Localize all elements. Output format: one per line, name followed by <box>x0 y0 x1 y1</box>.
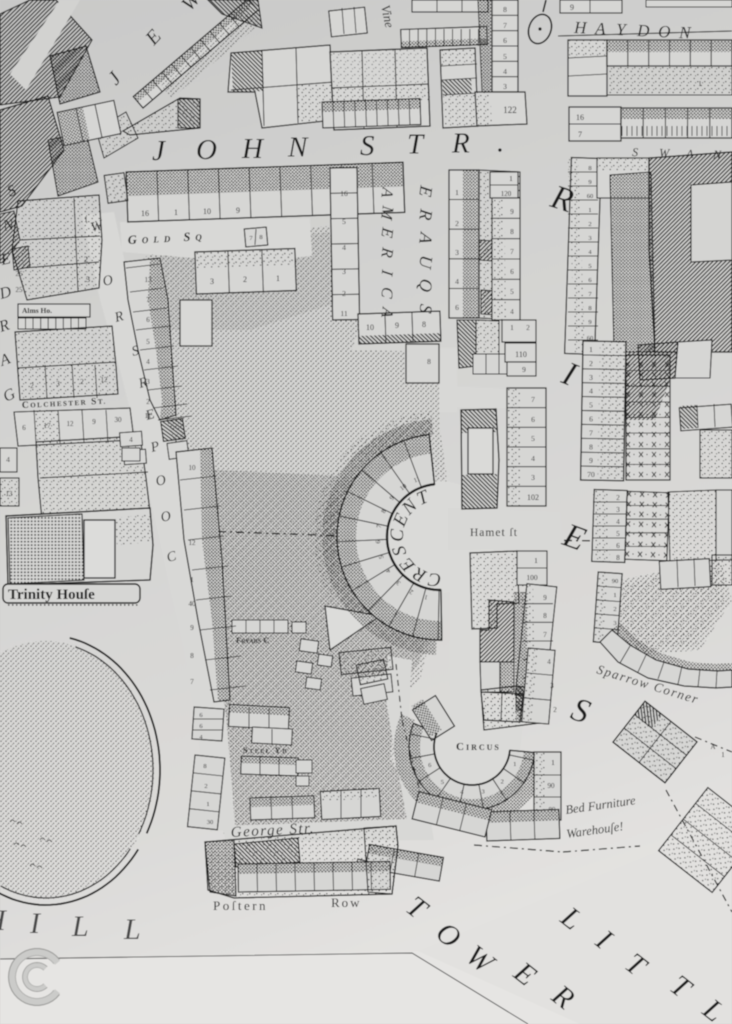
svg-text:3: 3 <box>342 267 346 276</box>
svg-text:1: 1 <box>84 214 88 224</box>
svg-text:10: 10 <box>189 464 197 472</box>
svg-text:90: 90 <box>612 578 619 585</box>
svg-text:9: 9 <box>588 319 591 326</box>
svg-text:4: 4 <box>129 436 133 444</box>
svg-text:90: 90 <box>548 782 556 790</box>
svg-text:9: 9 <box>92 418 96 426</box>
svg-text:H: H <box>241 133 265 165</box>
svg-text:5: 5 <box>441 779 444 786</box>
svg-text:S: S <box>360 130 375 162</box>
svg-text:Q: Q <box>415 278 437 294</box>
svg-text:3: 3 <box>86 274 90 284</box>
svg-text:4: 4 <box>510 308 514 316</box>
svg-text:7: 7 <box>190 678 194 686</box>
svg-text:2: 2 <box>84 254 88 264</box>
svg-text:2: 2 <box>613 606 616 613</box>
svg-text:3: 3 <box>503 82 507 91</box>
svg-text:8: 8 <box>422 320 426 329</box>
svg-text:2: 2 <box>588 221 591 228</box>
svg-text:7: 7 <box>531 395 535 404</box>
svg-text:3: 3 <box>588 235 591 242</box>
svg-text:Poſtern: Poſtern <box>213 898 268 913</box>
svg-text:1: 1 <box>174 208 178 217</box>
svg-text:5: 5 <box>531 434 535 443</box>
svg-text:7: 7 <box>578 130 582 139</box>
svg-text:5: 5 <box>588 263 591 270</box>
svg-text:30: 30 <box>207 819 214 826</box>
svg-text:10: 10 <box>203 207 211 216</box>
svg-text:8: 8 <box>510 228 514 236</box>
svg-text:2: 2 <box>342 289 346 298</box>
svg-text:5: 5 <box>503 52 507 61</box>
svg-text:6: 6 <box>589 415 593 424</box>
svg-text:Hamet ſt: Hamet ſt <box>470 527 518 539</box>
svg-text:2: 2 <box>526 324 530 332</box>
svg-text:1: 1 <box>510 324 514 332</box>
svg-text:12: 12 <box>101 376 109 384</box>
svg-text:Row: Row <box>331 895 362 910</box>
svg-text:9: 9 <box>570 3 574 12</box>
svg-text:Trinity Houſe: Trinity Houſe <box>8 587 95 603</box>
svg-text:1: 1 <box>589 345 593 354</box>
svg-text:1: 1 <box>588 207 591 214</box>
svg-text:A: A <box>594 19 607 38</box>
svg-text:9: 9 <box>522 365 526 374</box>
svg-text:3: 3 <box>531 473 535 482</box>
svg-text:12: 12 <box>67 420 75 428</box>
svg-text:5: 5 <box>616 530 620 538</box>
svg-text:6: 6 <box>22 424 26 432</box>
svg-text:120: 120 <box>501 190 512 198</box>
svg-text:9: 9 <box>589 456 593 465</box>
svg-text:8: 8 <box>588 165 591 172</box>
svg-text:4: 4 <box>146 358 150 366</box>
svg-text:8: 8 <box>616 554 620 562</box>
svg-text:5: 5 <box>146 338 150 346</box>
svg-text:6: 6 <box>616 542 620 550</box>
svg-text:O: O <box>196 134 217 166</box>
svg-text:6: 6 <box>455 303 459 312</box>
svg-text:.: . <box>497 126 504 158</box>
svg-text:3: 3 <box>56 380 60 388</box>
svg-text:J: J <box>152 135 166 167</box>
svg-text:2: 2 <box>30 382 34 390</box>
svg-text:8: 8 <box>203 763 206 770</box>
svg-text:1: 1 <box>698 80 702 88</box>
svg-text:9: 9 <box>236 206 240 215</box>
svg-text:8: 8 <box>427 357 431 366</box>
svg-text:2: 2 <box>616 494 620 502</box>
svg-text:2: 2 <box>146 398 150 406</box>
svg-text:60: 60 <box>587 193 594 200</box>
svg-text:7: 7 <box>510 248 514 256</box>
svg-text:L: L <box>71 910 89 943</box>
svg-text:4: 4 <box>503 67 507 76</box>
svg-text:7: 7 <box>543 631 547 639</box>
svg-text:2: 2 <box>455 219 459 228</box>
svg-text:3: 3 <box>613 620 616 627</box>
svg-text:1: 1 <box>206 801 209 808</box>
svg-text:3: 3 <box>589 373 593 382</box>
svg-text:3: 3 <box>455 248 459 257</box>
svg-text:7: 7 <box>146 296 150 304</box>
svg-text:9: 9 <box>395 321 399 330</box>
svg-text:2: 2 <box>501 779 504 786</box>
svg-text:4: 4 <box>589 387 593 396</box>
svg-text:1: 1 <box>190 576 194 584</box>
svg-text:5: 5 <box>342 217 346 226</box>
svg-text:D: D <box>636 21 651 40</box>
svg-text:1: 1 <box>551 758 555 767</box>
svg-text:16: 16 <box>141 209 149 218</box>
svg-text:5: 5 <box>510 288 514 296</box>
svg-text:2: 2 <box>204 783 207 790</box>
svg-text:R: R <box>451 128 470 160</box>
svg-text:8: 8 <box>588 305 591 312</box>
svg-text:11: 11 <box>340 309 347 318</box>
svg-text:100: 100 <box>526 573 538 582</box>
svg-text:A: A <box>710 743 715 751</box>
svg-text:4: 4 <box>531 454 535 463</box>
svg-text:6: 6 <box>503 36 507 45</box>
svg-text:H: H <box>573 18 589 38</box>
svg-text:9: 9 <box>190 624 194 632</box>
svg-text:8: 8 <box>259 234 262 241</box>
svg-text:4: 4 <box>547 658 551 666</box>
svg-text:16: 16 <box>576 113 584 122</box>
svg-text:L: L <box>123 913 141 946</box>
svg-text:1: 1 <box>276 274 280 283</box>
svg-text:S: S <box>632 145 638 159</box>
svg-text:25: 25 <box>16 286 24 294</box>
svg-text:4: 4 <box>342 243 346 252</box>
svg-text:T: T <box>407 129 425 161</box>
svg-text:2: 2 <box>243 275 247 284</box>
svg-text:6: 6 <box>146 316 150 324</box>
svg-text:3: 3 <box>550 682 554 690</box>
svg-text:110: 110 <box>515 350 527 359</box>
svg-text:16: 16 <box>340 189 348 198</box>
svg-text:12: 12 <box>189 539 197 547</box>
svg-text:8: 8 <box>543 612 547 620</box>
svg-text:4: 4 <box>616 518 620 526</box>
svg-text:1: 1 <box>613 592 616 599</box>
svg-text:9: 9 <box>588 179 591 186</box>
svg-text:2: 2 <box>80 378 84 386</box>
svg-text:10: 10 <box>366 323 374 332</box>
svg-text:4: 4 <box>455 277 459 286</box>
svg-text:26: 26 <box>16 270 24 278</box>
svg-text:O: O <box>658 22 671 41</box>
svg-text:8: 8 <box>190 652 194 660</box>
svg-text:3: 3 <box>481 789 484 796</box>
svg-text:8: 8 <box>589 442 593 451</box>
svg-text:1: 1 <box>455 188 459 197</box>
svg-text:30: 30 <box>115 416 123 424</box>
svg-text:122: 122 <box>503 105 517 115</box>
svg-text:3: 3 <box>210 277 214 286</box>
svg-text:CIRCUS: CIRCUS <box>456 741 501 753</box>
svg-text:70: 70 <box>587 470 595 479</box>
svg-text:2: 2 <box>589 359 593 368</box>
svg-text:9: 9 <box>543 594 547 602</box>
svg-text:2: 2 <box>553 706 557 714</box>
svg-text:1: 1 <box>509 174 513 183</box>
svg-text:8: 8 <box>503 5 507 14</box>
svg-text:6: 6 <box>531 415 535 424</box>
svg-text:1: 1 <box>513 761 516 768</box>
svg-text:13: 13 <box>6 490 14 498</box>
svg-text:13: 13 <box>145 276 153 284</box>
svg-text:4: 4 <box>6 455 10 464</box>
svg-text:6: 6 <box>510 268 514 276</box>
svg-text:5: 5 <box>589 401 593 410</box>
svg-text:N: N <box>287 132 309 164</box>
svg-text:17: 17 <box>44 422 52 430</box>
svg-text:7: 7 <box>503 21 507 30</box>
svg-text:1: 1 <box>721 751 725 759</box>
svg-text:40: 40 <box>189 600 197 608</box>
svg-text:3: 3 <box>616 506 620 514</box>
svg-text:Alms Ho.: Alms Ho. <box>22 306 52 315</box>
svg-text:1: 1 <box>534 556 538 565</box>
svg-text:7: 7 <box>589 428 593 437</box>
svg-text:102: 102 <box>527 493 539 502</box>
svg-text:9: 9 <box>510 208 514 216</box>
svg-text:C: C <box>387 528 408 542</box>
